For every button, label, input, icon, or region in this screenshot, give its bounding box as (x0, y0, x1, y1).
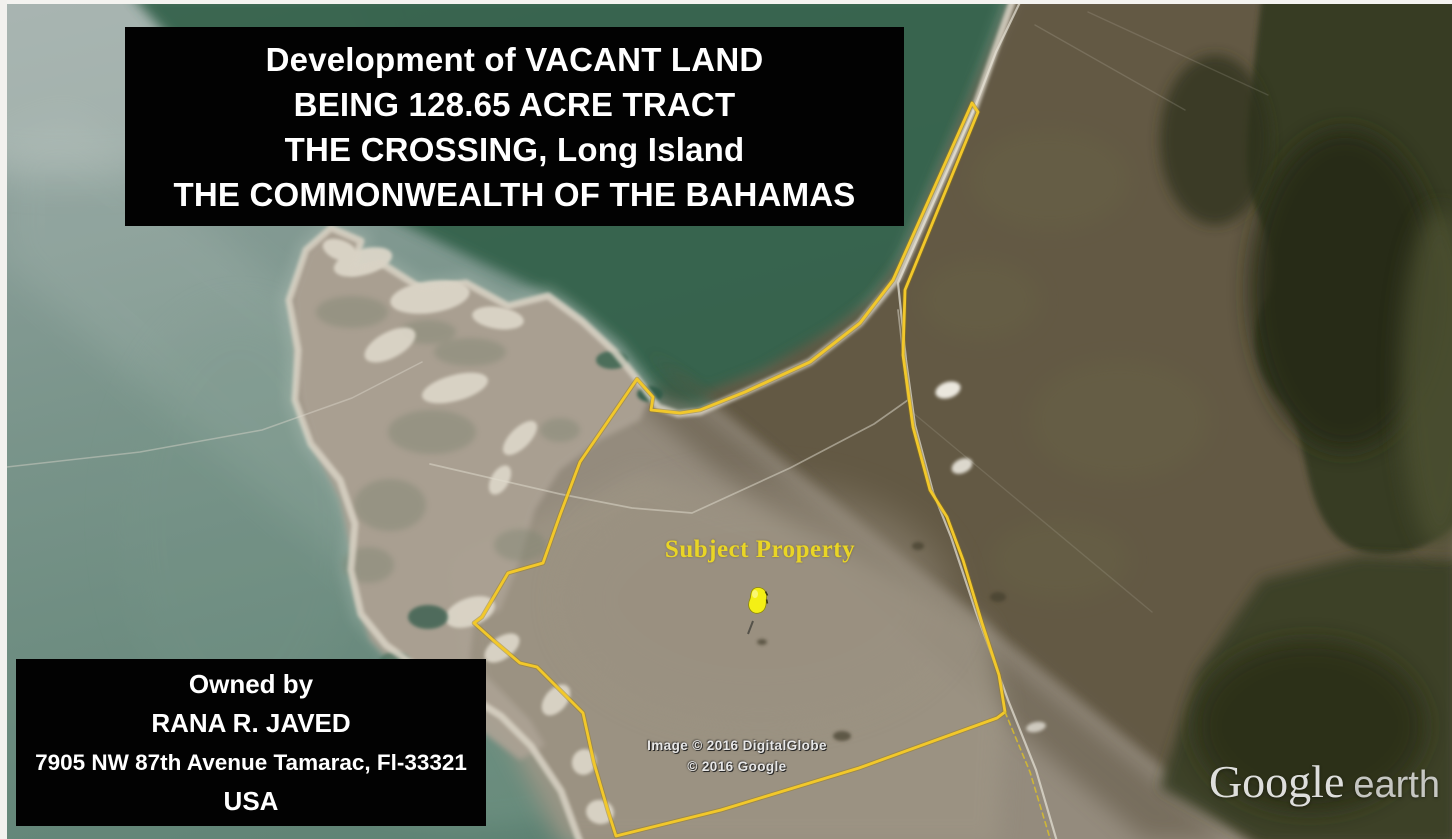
title-line-4: THE COMMONWEALTH OF THE BAHAMAS (173, 172, 855, 217)
frame-border-top (0, 0, 1452, 4)
attribution-line-1: Image © 2016 DigitalGlobe (647, 735, 827, 756)
subject-property-pin[interactable] (738, 584, 778, 640)
attribution-line-2: © 2016 Google (647, 756, 827, 777)
owner-country: USA (224, 782, 279, 821)
frame-border-left (0, 0, 7, 839)
google-earth-screenshot: Development of VACANT LAND BEING 128.65 … (0, 0, 1452, 839)
google-earth-logo: Google earth (1209, 759, 1440, 805)
title-line-2: BEING 128.65 ACRE TRACT (294, 82, 736, 127)
subject-property-label: Subject Property (665, 536, 855, 564)
imagery-attribution: Image © 2016 DigitalGlobe © 2016 Google (647, 735, 827, 777)
owner-line-1: Owned by (189, 665, 313, 704)
title-line-1: Development of VACANT LAND (266, 37, 764, 82)
owner-box: Owned by RANA R. JAVED 7905 NW 87th Aven… (16, 659, 486, 826)
owner-line-2: RANA R. JAVED (151, 704, 350, 743)
owner-address: 7905 NW 87th Avenue Tamarac, Fl-33321 (35, 743, 467, 782)
title-box: Development of VACANT LAND BEING 128.65 … (125, 27, 904, 226)
yellow-pushpin-icon (738, 584, 778, 640)
google-logo-text: Google (1209, 759, 1344, 805)
earth-logo-text: earth (1353, 766, 1440, 804)
title-line-3: THE CROSSING, Long Island (285, 127, 745, 172)
